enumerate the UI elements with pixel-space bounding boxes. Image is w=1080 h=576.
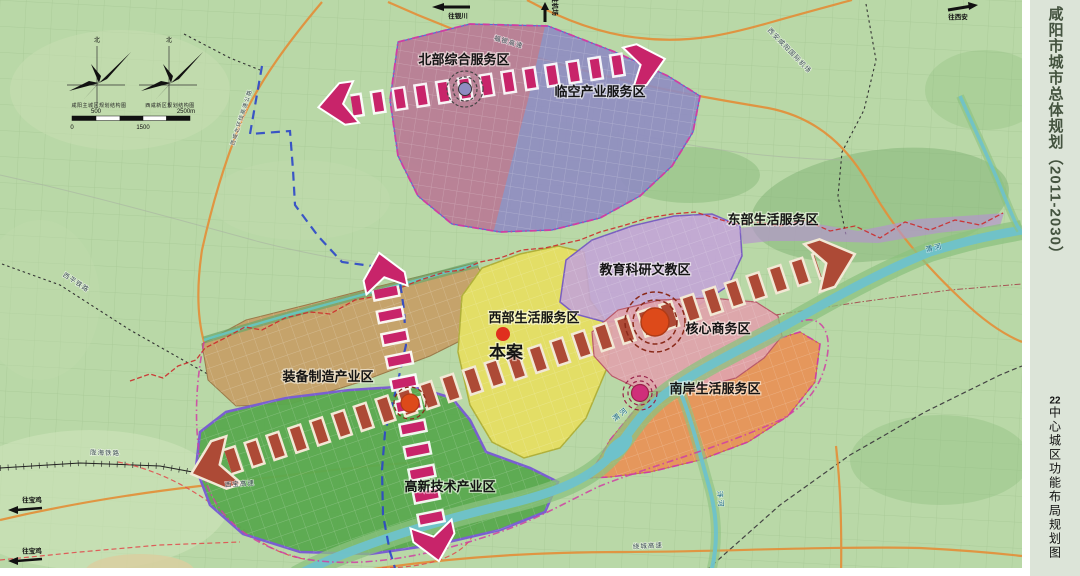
- compass-caption-left: 咸阳主城区规划结构图: [71, 102, 126, 109]
- compass-north-label: 北: [94, 36, 100, 44]
- map-image: 北部综合服务区 临空产业服务区 东部生活服务区 教育科研文教区 西部生活服务区 …: [0, 0, 1022, 568]
- label-core-zone: 核心商务区: [685, 321, 750, 336]
- label-north-zone: 北部综合服务区: [418, 52, 509, 67]
- compass-caption-right: 西咸新区规划结构图: [145, 102, 195, 109]
- map-canvas: 北部综合服务区 临空产业服务区 东部生活服务区 教育科研文教区 西部生活服务区 …: [0, 0, 1022, 568]
- label-equipment-zone: 装备制造产业区: [281, 369, 373, 384]
- compass-north-label: 北: [166, 36, 172, 44]
- map-number: 22: [1050, 396, 1061, 406]
- right-sidebar: 咸阳市城市总体规划（2011-2030） 22中心城区功能布局规划图: [1030, 0, 1080, 576]
- svg-text:往宝鸡: 往宝鸡: [22, 495, 42, 504]
- scale-2500m: 2500m: [177, 109, 195, 115]
- label-east-zone: 东部生活服务区: [727, 212, 818, 227]
- planning-map-page: 北部综合服务区 临空产业服务区 东部生活服务区 教育科研文教区 西部生活服务区 …: [0, 0, 1080, 576]
- label-airport-zone: 临空产业服务区: [554, 84, 645, 99]
- label-site: 本案: [489, 342, 524, 362]
- map-subtitle-text: 中心城区功能布局规划图: [1048, 406, 1062, 560]
- svg-text:往西安: 往西安: [948, 12, 968, 21]
- label-west-zone: 西部生活服务区: [488, 310, 579, 325]
- scale-1500: 1500: [136, 125, 150, 131]
- svg-text:往银川: 往银川: [448, 11, 468, 20]
- site-dot: [496, 327, 510, 341]
- map-subtitle: 22中心城区功能布局规划图: [1047, 396, 1064, 560]
- label-edu-zone: 教育科研文教区: [598, 262, 690, 277]
- svg-text:往机场: 往机场: [551, 0, 560, 16]
- map-title: 咸阳市城市总体规划（2011-2030）: [1045, 6, 1066, 262]
- label-hightech-zone: 高新技术产业区: [404, 479, 495, 494]
- svg-text:往宝鸡: 往宝鸡: [22, 546, 42, 555]
- label-south-zone: 南岸生活服务区: [669, 381, 760, 396]
- scale-500: 500: [91, 109, 102, 115]
